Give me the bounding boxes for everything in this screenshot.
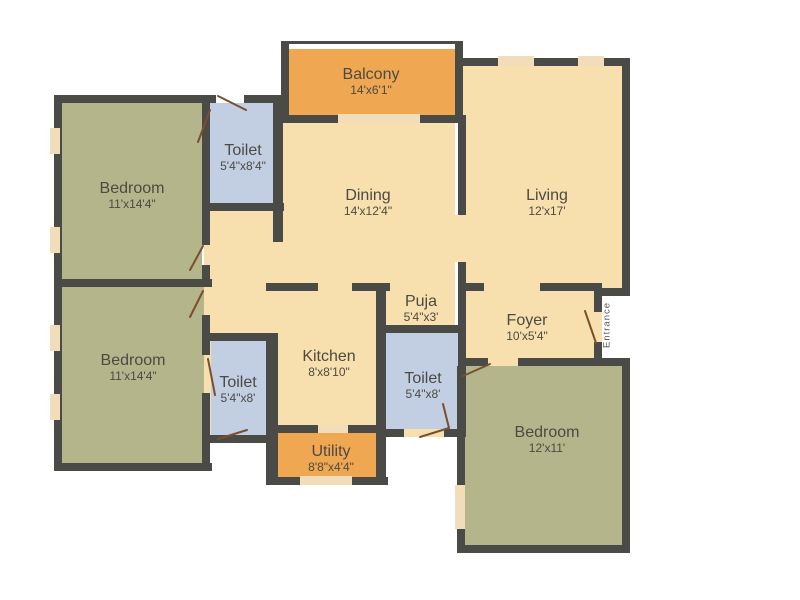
- room-label-bedroom-top-left: Bedroom 11'x14'4": [100, 180, 165, 212]
- room-dimensions: 11'x14'4": [101, 370, 166, 384]
- room-name: Bedroom: [101, 352, 166, 370]
- window: [300, 476, 352, 485]
- balcony-rail-gap: [289, 44, 455, 49]
- wall-segment: [462, 58, 630, 66]
- wall-segment: [202, 265, 210, 287]
- wall-segment: [203, 435, 278, 443]
- wall-segment: [281, 41, 289, 123]
- wall-segment: [204, 333, 274, 341]
- floor-fill-passage: [455, 215, 466, 262]
- room-dimensions: 8'8"x4'4": [308, 461, 354, 475]
- wall-segment: [540, 283, 602, 291]
- room-name: Toilet: [220, 142, 266, 160]
- wall-segment: [378, 325, 466, 333]
- window: [50, 394, 60, 420]
- room-label-living: Living 12'x17': [526, 187, 568, 219]
- room-dimensions: 14'x12'4": [344, 205, 392, 219]
- wall-segment: [274, 425, 318, 433]
- wall-segment: [266, 333, 278, 485]
- room-name: Utility: [308, 443, 354, 461]
- room-name: Kitchen: [302, 348, 355, 366]
- wall-segment: [455, 41, 463, 123]
- wall-segment: [376, 283, 386, 485]
- room-label-toilet-bottom-mid: Toilet 5'4"x8': [404, 370, 441, 402]
- window: [338, 114, 420, 123]
- room-dimensions: 5'4"x8': [404, 388, 441, 402]
- wall-segment: [622, 358, 630, 553]
- wall-segment: [266, 283, 318, 291]
- wall-segment: [378, 429, 404, 437]
- toilet-vent-gap: [216, 93, 244, 103]
- room-dimensions: 12'x17': [526, 205, 568, 219]
- room-name: Foyer: [506, 312, 548, 330]
- room-name: Toilet: [404, 370, 441, 388]
- room-name: Toilet: [219, 374, 256, 392]
- room-dimensions: 14'x6'1": [343, 84, 400, 98]
- room-name: Puja: [404, 293, 439, 311]
- room-dimensions: 8'x8'10": [302, 366, 355, 380]
- room-dimensions: 5'4"x8': [219, 392, 256, 406]
- room-name: Balcony: [343, 66, 400, 84]
- room-name: Living: [526, 187, 568, 205]
- wall-segment: [458, 358, 488, 366]
- window: [498, 56, 534, 66]
- wall-segment: [458, 115, 466, 215]
- room-label-puja: Puja 5'4"x3': [404, 293, 439, 325]
- entrance-text: Entrance: [603, 302, 614, 348]
- window: [50, 128, 60, 154]
- wall-segment: [54, 95, 286, 103]
- window: [318, 425, 348, 433]
- wall-segment: [202, 95, 210, 245]
- room-label-bedroom-mid-left: Bedroom 11'x14'4": [101, 352, 166, 384]
- wall-segment: [54, 463, 212, 471]
- room-dimensions: 5'4"x3': [404, 311, 439, 325]
- window: [455, 485, 465, 529]
- room-label-balcony: Balcony 14'x6'1": [343, 66, 400, 98]
- window: [50, 325, 60, 351]
- room-dimensions: 10'x5'4": [506, 330, 548, 344]
- wall-segment: [622, 58, 630, 288]
- room-dimensions: 5'4"x8'4": [220, 160, 266, 174]
- window: [50, 227, 60, 253]
- wall-segment: [202, 393, 210, 471]
- room-dimensions: 12'x11': [515, 442, 580, 456]
- room-name: Bedroom: [100, 180, 165, 198]
- room-dimensions: 11'x14'4": [100, 198, 165, 212]
- wall-segment: [204, 203, 284, 211]
- room-label-foyer: Foyer 10'x5'4": [506, 312, 548, 344]
- entrance-label: Entrance: [603, 302, 614, 348]
- room-name: Bedroom: [515, 424, 580, 442]
- wall-segment: [594, 288, 630, 296]
- wall-segment: [348, 425, 378, 433]
- room-label-toilet-bottom-left: Toilet 5'4"x8': [219, 374, 256, 406]
- wall-segment: [458, 545, 630, 553]
- room-label-utility: Utility 8'8"x4'4": [308, 443, 354, 475]
- room-name: Dining: [344, 187, 392, 205]
- wall-segment: [54, 279, 212, 287]
- room-label-dining: Dining 14'x12'4": [344, 187, 392, 219]
- wall-segment: [458, 283, 484, 291]
- room-label-bedroom-bottom-right: Bedroom 12'x11': [515, 424, 580, 456]
- room-label-toilet-top: Toilet 5'4"x8'4": [220, 142, 266, 174]
- floor-plan: Bedroom 11'x14'4" Toilet 5'4"x8'4" Balco…: [0, 0, 800, 600]
- wall-segment: [518, 358, 630, 366]
- window: [578, 56, 604, 66]
- room-label-kitchen: Kitchen 8'x8'10": [302, 348, 355, 380]
